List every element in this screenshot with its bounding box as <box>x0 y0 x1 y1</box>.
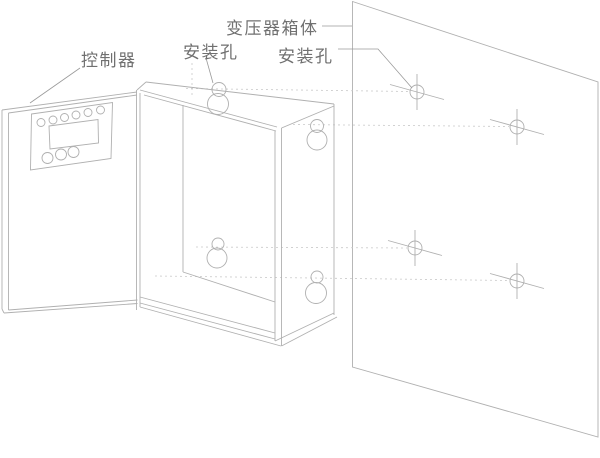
label-box-mounting-hole: 安装孔 <box>183 43 239 63</box>
controller-panel <box>31 103 113 171</box>
alignment-dashed-line <box>186 89 409 92</box>
box-keyhole-slot-2 <box>307 120 327 151</box>
label-transformer-box: 变压器箱体 <box>226 19 319 39</box>
transformer-box <box>137 82 338 346</box>
leader-line-controller <box>30 68 80 103</box>
alignment-dashed-line <box>293 125 509 127</box>
cabinet-door <box>2 92 138 313</box>
diagram-canvas: 控制器 安装孔 安装孔 变压器箱体 <box>0 0 600 458</box>
alignment-dashed-lines <box>155 63 509 281</box>
controller-large-buttons <box>42 147 79 164</box>
controller-display <box>49 120 99 150</box>
box-keyhole-slot-4 <box>306 271 327 304</box>
wall-mounting-hole-1 <box>390 74 444 110</box>
installation-diagram: 控制器 安装孔 安装孔 变压器箱体 <box>0 0 600 458</box>
box-keyhole-slot-3 <box>207 238 227 268</box>
label-controller: 控制器 <box>81 51 137 71</box>
wall-panel <box>353 2 599 438</box>
wall-mounting-hole-2 <box>490 109 544 145</box>
leader-line-wall-hole <box>338 49 412 88</box>
wall-mounting-hole-4 <box>490 263 544 299</box>
alignment-dashed-line <box>196 247 407 248</box>
box-keyhole-slot-1 <box>208 83 229 115</box>
label-wall-mounting-hole: 安装孔 <box>278 47 334 67</box>
